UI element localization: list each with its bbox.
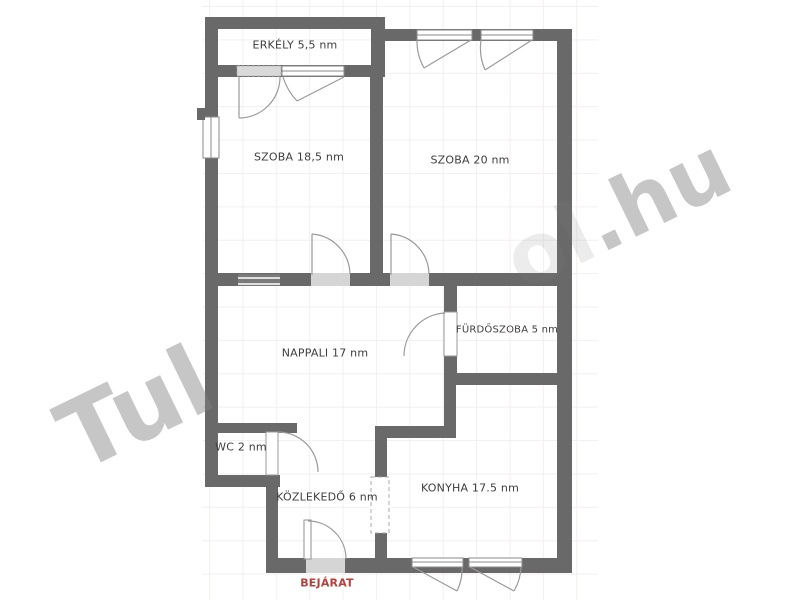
kitchen-window-1 xyxy=(412,558,463,567)
top-window-1-swing xyxy=(417,40,471,68)
room-label-wc: WC 2 nm xyxy=(215,441,267,454)
left-wall-window xyxy=(203,117,219,158)
floorplan-drawing xyxy=(202,0,598,600)
wc-door-leaf xyxy=(266,432,278,475)
floorplan-canvas: ERKÉLY 5,5 nm SZOBA 18,5 nm SZOBA 20 nm … xyxy=(0,0,800,600)
room-label-balcony: ERKÉLY 5,5 nm xyxy=(253,39,338,52)
top-window-2-swing xyxy=(480,40,532,70)
wall-balcony-top xyxy=(205,17,385,29)
balcony-door-swing xyxy=(239,77,280,118)
room-label-living: NAPPALI 17 nm xyxy=(282,347,369,360)
room2-door-gap xyxy=(390,273,429,286)
room-label-bathroom: FÜRDŐSZOBA 5 nm xyxy=(456,325,558,336)
entrance-door-leaf xyxy=(304,520,311,559)
watermark-prefix: Tul xyxy=(44,332,226,487)
room1-door-gap xyxy=(311,273,350,286)
room-label-hall: KÖZLEKEDŐ 6 nm xyxy=(276,491,378,504)
balcony-door-threshold xyxy=(237,66,281,76)
wc-door-swing xyxy=(278,432,318,472)
interior-glazing xyxy=(238,274,280,286)
wall-stub xyxy=(197,108,205,120)
floorplan-sheet: ERKÉLY 5,5 nm SZOBA 18,5 nm SZOBA 20 nm … xyxy=(202,0,598,600)
wall-bathroom-bottom xyxy=(444,373,570,385)
balcony-window xyxy=(282,66,344,76)
top-window-2 xyxy=(481,30,533,40)
room-label-room1: SZOBA 18,5 nm xyxy=(254,151,344,164)
entrance-label: BEJÁRAT xyxy=(300,577,354,590)
entrance-door-swing xyxy=(308,521,346,559)
wall-kitchen-jog xyxy=(375,426,456,438)
entrance-door-gap xyxy=(306,558,345,573)
bathroom-door-swing xyxy=(404,313,445,356)
wall-outer-top-right xyxy=(384,29,572,41)
room-label-kitchen: KONYHA 17.5 nm xyxy=(421,482,519,495)
room2-door-swing xyxy=(391,234,429,275)
room1-door-swing xyxy=(312,234,350,275)
wall-room-divider xyxy=(370,77,383,274)
wall-wc-top xyxy=(205,423,297,433)
wall-outer-right xyxy=(557,29,572,573)
top-window-1 xyxy=(417,30,472,40)
sliding-door xyxy=(371,477,389,533)
balcony-window-swing xyxy=(283,77,344,101)
room-label-room2: SZOBA 20 nm xyxy=(430,154,509,167)
kitchen-window-2 xyxy=(469,558,522,567)
